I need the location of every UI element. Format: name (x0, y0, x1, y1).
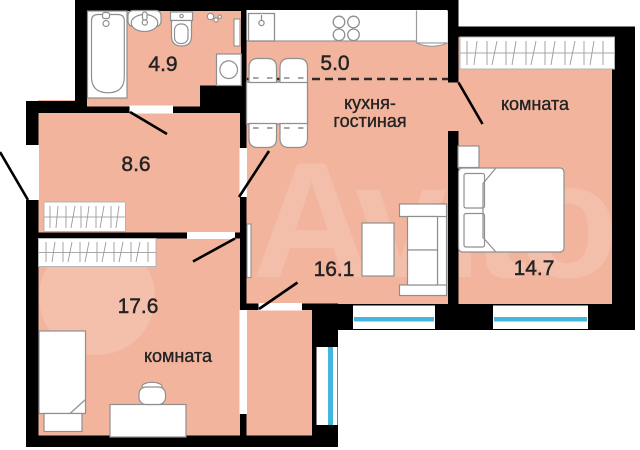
svg-text:16.1: 16.1 (314, 258, 355, 281)
svg-text:комната: комната (501, 94, 570, 114)
svg-text:комната: комната (144, 346, 213, 366)
svg-text:8.6: 8.6 (121, 153, 150, 176)
svg-text:гостиная: гостиная (333, 111, 406, 131)
svg-text:14.7: 14.7 (514, 257, 555, 280)
svg-text:4.9: 4.9 (148, 53, 177, 76)
svg-text:кухня-: кухня- (344, 93, 396, 113)
svg-text:17.6: 17.6 (118, 295, 159, 318)
svg-text:5.0: 5.0 (320, 52, 349, 75)
